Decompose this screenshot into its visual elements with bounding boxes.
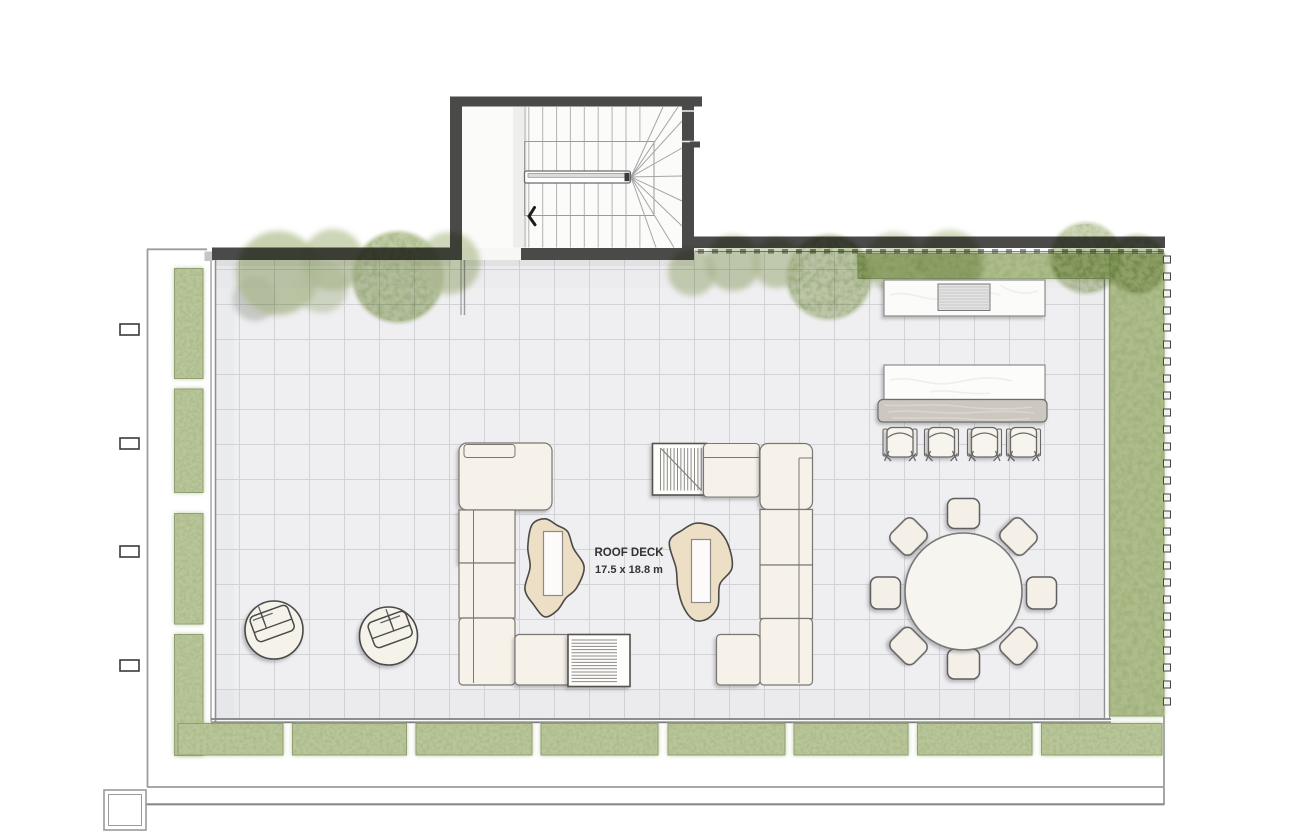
svg-text:ROOF DECK: ROOF DECK bbox=[595, 547, 665, 559]
svg-text:17.5 x 18.8 m: 17.5 x 18.8 m bbox=[595, 564, 663, 576]
